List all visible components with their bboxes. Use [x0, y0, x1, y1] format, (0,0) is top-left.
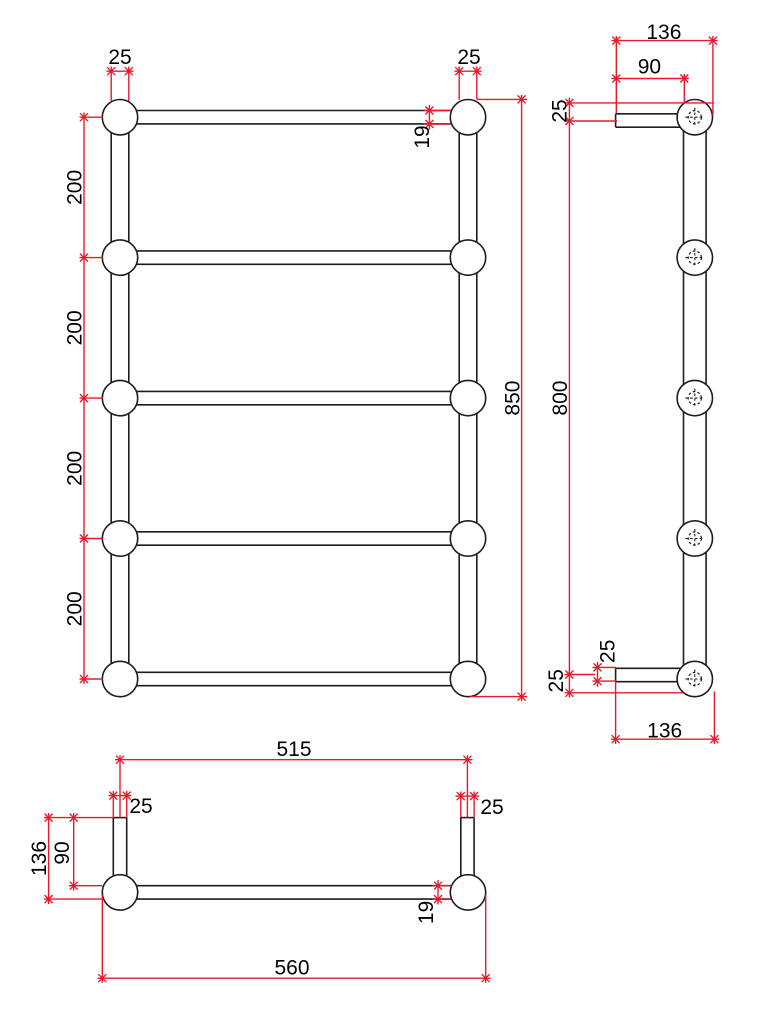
svg-text:136: 136 [28, 841, 51, 876]
svg-text:25: 25 [548, 99, 571, 122]
svg-text:19: 19 [415, 901, 438, 924]
svg-text:25: 25 [457, 46, 480, 69]
svg-text:850: 850 [502, 381, 525, 416]
svg-text:136: 136 [647, 720, 682, 743]
svg-text:200: 200 [64, 310, 87, 345]
svg-text:200: 200 [64, 170, 87, 205]
svg-text:25: 25 [480, 796, 503, 819]
svg-text:90: 90 [638, 56, 661, 79]
svg-text:515: 515 [276, 738, 311, 761]
svg-text:136: 136 [646, 21, 681, 44]
svg-text:200: 200 [64, 451, 87, 486]
svg-text:25: 25 [545, 669, 568, 692]
svg-text:560: 560 [274, 957, 309, 980]
svg-text:800: 800 [549, 381, 572, 416]
svg-text:25: 25 [129, 795, 152, 818]
svg-text:200: 200 [64, 591, 87, 626]
svg-text:90: 90 [51, 841, 74, 864]
svg-text:25: 25 [108, 46, 131, 69]
svg-text:25: 25 [597, 640, 620, 663]
svg-text:19: 19 [411, 125, 434, 148]
